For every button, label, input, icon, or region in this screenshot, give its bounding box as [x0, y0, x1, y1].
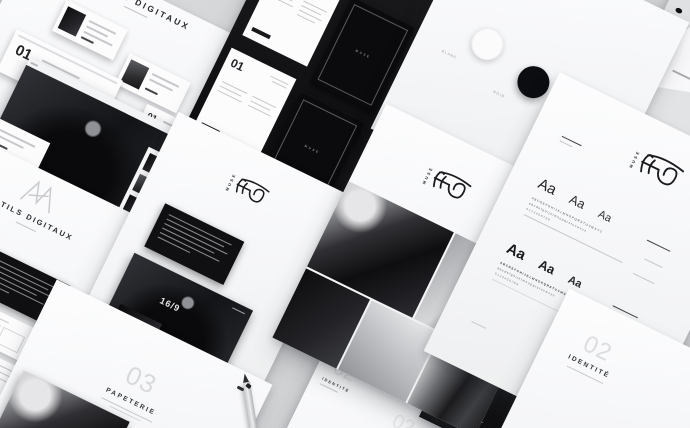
- muse-logo: MUSE: [623, 138, 690, 201]
- type-specimen-aa: Aa: [504, 240, 529, 264]
- muse-logo: MUSE: [220, 164, 276, 217]
- type-specimen-aa: Aa: [536, 257, 558, 278]
- text-line: [145, 87, 158, 95]
- bead-speck: [675, 7, 683, 15]
- identite-block: 02 IDENTITÉ: [542, 316, 647, 397]
- browser-dots: [30, 62, 38, 67]
- muse-seal-glyph-icon: [229, 172, 273, 211]
- section-label-line: [562, 136, 582, 147]
- alphabet-line: abcdefghijklmnopqrstuvwxyz: [528, 201, 656, 266]
- type-specimen-aa: Aa: [535, 175, 559, 198]
- body-line: [301, 5, 321, 16]
- timecode-line: [232, 307, 245, 314]
- product-thumb: [121, 59, 149, 89]
- text-line: [0, 356, 12, 372]
- text-line: [0, 309, 9, 323]
- letterhead-number: 01: [228, 56, 246, 74]
- swatch-label: NOIR: [492, 90, 505, 99]
- body-line: [248, 105, 271, 117]
- side-label-line: [633, 273, 655, 284]
- signature-bar: [251, 27, 271, 39]
- portfolio-flatlay-board: OUTILS DIGITAUX 01 01: [0, 0, 690, 428]
- body-line: [268, 0, 293, 7]
- ghost-number: 02: [388, 410, 418, 428]
- body-line: [220, 85, 242, 96]
- type-specimen-aa: Aa: [596, 208, 613, 225]
- type-specimen-aa: Aa: [567, 191, 588, 211]
- swatch-label: BLANC: [441, 49, 458, 60]
- ratio-label: 16/9: [158, 295, 182, 313]
- product-thumb: [58, 6, 86, 36]
- muse-logo: MUSE: [417, 156, 478, 213]
- text-line: [0, 141, 8, 150]
- swatch-white: [466, 23, 509, 66]
- body-line: [250, 100, 270, 111]
- pencil-tip: [242, 373, 249, 383]
- alphabet-line: ABCDEFGHIJKLMNOPQRSTUVWXYZ: [531, 196, 659, 261]
- footer-line: [471, 321, 486, 329]
- body-line: [217, 90, 242, 103]
